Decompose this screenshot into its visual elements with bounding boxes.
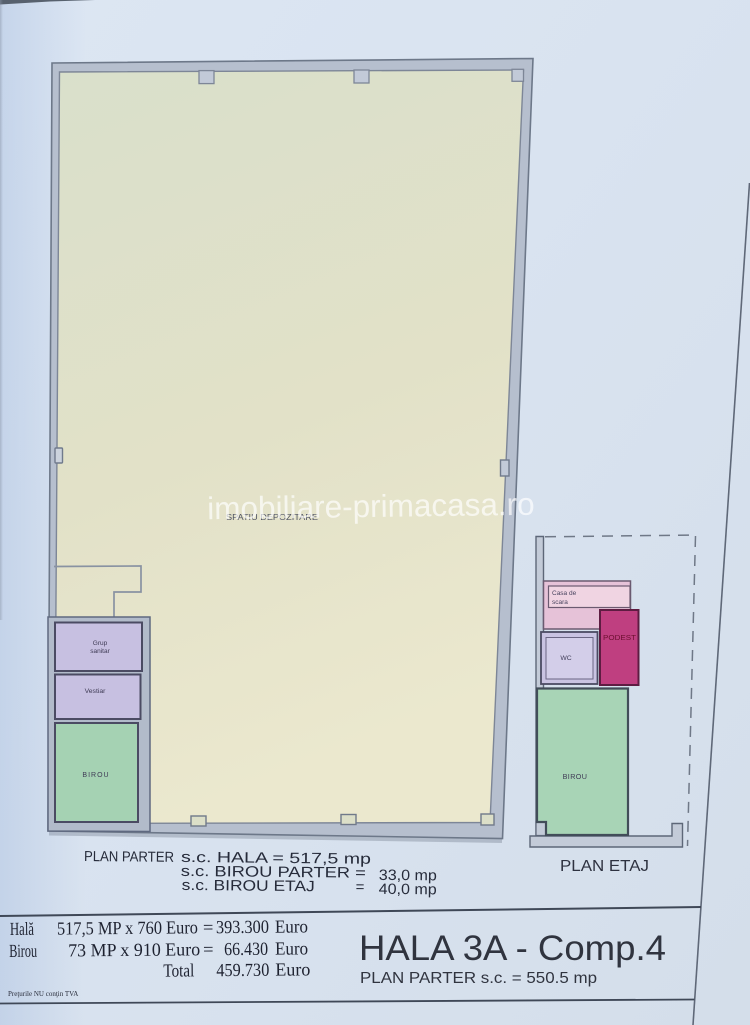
svg-text:Total: Total bbox=[163, 961, 194, 981]
svg-text:HALA 3A - Comp.4: HALA 3A - Comp.4 bbox=[359, 928, 666, 968]
svg-text:BIROU: BIROU bbox=[563, 772, 588, 781]
svg-text:=: = bbox=[203, 940, 214, 960]
svg-text:BIROU: BIROU bbox=[82, 772, 109, 779]
svg-text:PLAN PARTER: PLAN PARTER bbox=[84, 849, 174, 866]
svg-text:66.430: 66.430 bbox=[224, 940, 268, 960]
svg-text:393.300: 393.300 bbox=[216, 918, 269, 938]
svg-text:Grup: Grup bbox=[93, 640, 108, 647]
svg-text:73 MP x 910 Euro: 73 MP x 910 Euro bbox=[68, 940, 200, 961]
svg-text:=: = bbox=[203, 918, 214, 938]
svg-text:459.730: 459.730 bbox=[216, 961, 269, 981]
svg-text:40,0 mp: 40,0 mp bbox=[379, 881, 437, 899]
svg-text:PODEST: PODEST bbox=[603, 635, 637, 642]
svg-text:PLAN PARTER s.c. = 550.5 mp: PLAN PARTER s.c. = 550.5 mp bbox=[360, 970, 597, 987]
svg-text:Casa de: Casa de bbox=[552, 590, 577, 597]
svg-text:scara: scara bbox=[552, 599, 568, 606]
svg-text:imobiliare-primacasa.ro: imobiliare-primacasa.ro bbox=[207, 486, 535, 527]
svg-text:=: = bbox=[356, 879, 365, 896]
svg-text:s.c. BIROU ETAJ: s.c. BIROU ETAJ bbox=[182, 877, 315, 895]
svg-text:Birou: Birou bbox=[9, 942, 37, 962]
svg-text:WC: WC bbox=[560, 655, 571, 662]
svg-text:Preţurile NU conţin TVA: Preţurile NU conţin TVA bbox=[8, 990, 78, 998]
svg-text:sanitar: sanitar bbox=[90, 648, 110, 655]
svg-text:517,5 MP x 760 Euro: 517,5 MP x 760 Euro bbox=[57, 918, 198, 939]
svg-text:PLAN ETAJ: PLAN ETAJ bbox=[560, 858, 649, 875]
svg-text:Vestiar: Vestiar bbox=[85, 688, 107, 695]
svg-text:Euro: Euro bbox=[275, 939, 308, 959]
svg-text:Euro: Euro bbox=[275, 917, 308, 937]
svg-text:Hală: Hală bbox=[10, 920, 34, 940]
svg-text:Euro: Euro bbox=[275, 960, 310, 980]
